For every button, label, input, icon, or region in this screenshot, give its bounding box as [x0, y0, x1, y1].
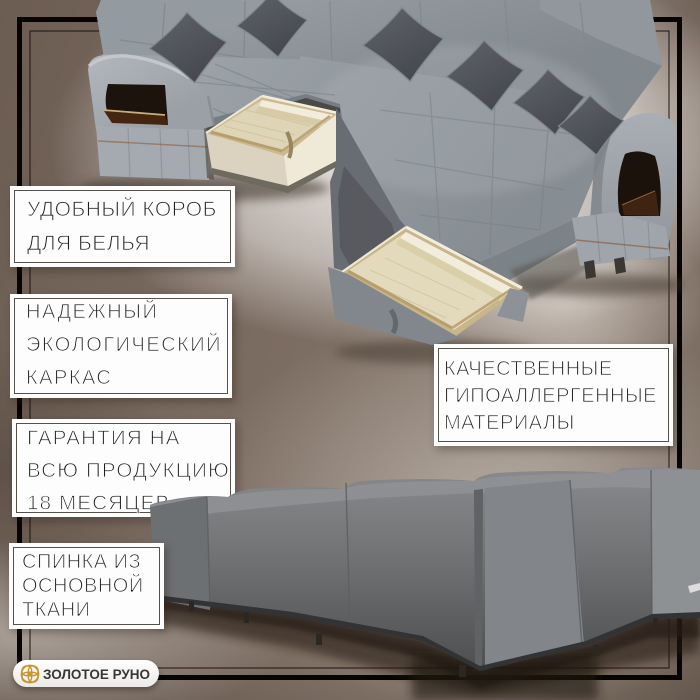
svg-text:ГАРАНТИЯ НА: ГАРАНТИЯ НА: [27, 427, 181, 450]
svg-text:ВСЮ ПРОДУКЦИЮ: ВСЮ ПРОДУКЦИЮ: [27, 459, 230, 482]
svg-text:18 МЕСЯЦЕВ: 18 МЕСЯЦЕВ: [27, 492, 170, 515]
